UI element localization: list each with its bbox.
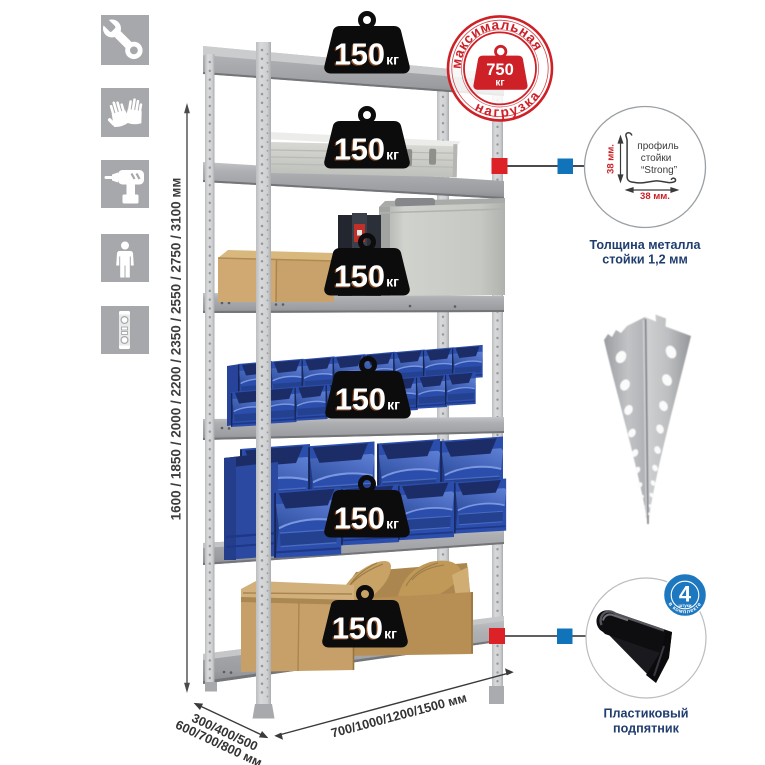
svg-text:кг: кг [495,78,504,89]
svg-text:“Strong”: “Strong” [641,165,677,176]
svg-text:Пластиковый: Пластиковый [603,707,688,721]
svg-text:штуки: штуки [679,603,692,608]
svg-text:стойки: стойки [641,153,672,164]
svg-text:профиль: профиль [637,140,678,152]
svg-text:750: 750 [486,61,514,79]
svg-text:38 мм.: 38 мм. [640,191,670,202]
svg-text:подпятник: подпятник [613,722,680,736]
svg-text:Толщина металла: Толщина металла [589,238,701,252]
svg-text:38 мм.: 38 мм. [606,144,617,174]
svg-text:1600 / 1850 / 2000 / 2200 / 23: 1600 / 1850 / 2000 / 2200 / 2350 / 2550 … [169,178,184,521]
svg-text:стойки 1,2 мм: стойки 1,2 мм [602,253,688,267]
